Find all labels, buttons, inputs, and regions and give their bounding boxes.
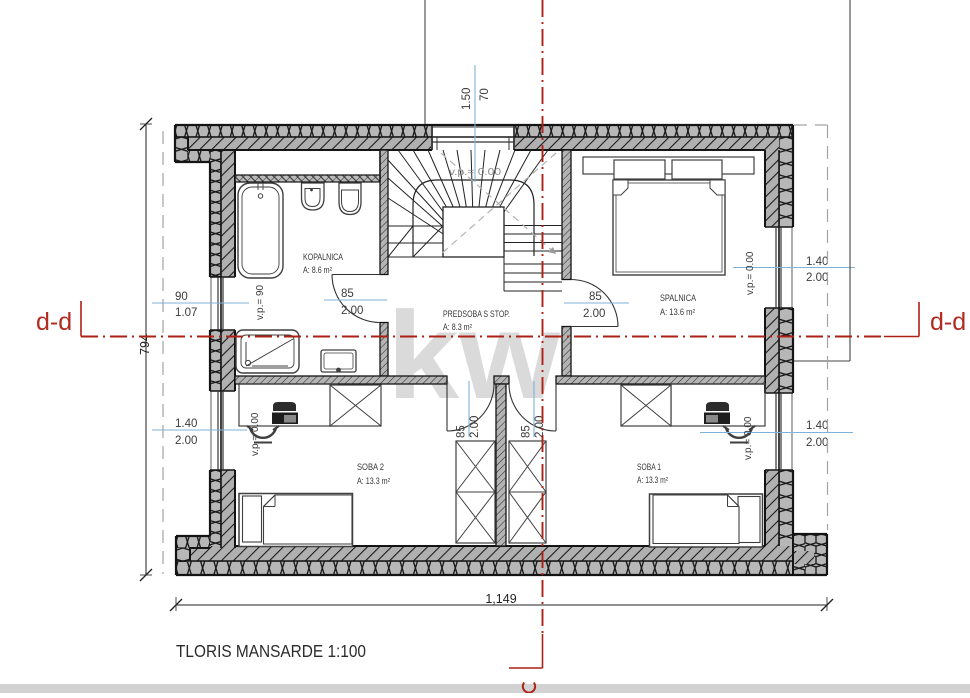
svg-text:2.00: 2.00 [806, 272, 828, 284]
svg-text:SOBA 2: SOBA 2 [357, 462, 384, 472]
svg-text:SOBA 1: SOBA 1 [637, 462, 661, 472]
svg-text:85: 85 [341, 288, 354, 300]
svg-text:A: 13.3 m²: A: 13.3 m² [637, 475, 668, 485]
svg-text:A: 8.3 m²: A: 8.3 m² [443, 322, 472, 332]
svg-text:2.00: 2.00 [583, 308, 605, 320]
svg-text:v.p.= 0.00: v.p.= 0.00 [250, 412, 261, 456]
svg-text:90: 90 [175, 291, 188, 303]
svg-text:2.00: 2.00 [175, 435, 197, 447]
svg-text:2.00: 2.00 [806, 437, 828, 449]
svg-text:2.00: 2.00 [469, 416, 481, 438]
svg-text:1.40: 1.40 [806, 256, 828, 268]
svg-text:1.50: 1.50 [461, 88, 473, 110]
svg-text:KOPALNICA: KOPALNICA [303, 252, 343, 262]
svg-text:d-d: d-d [36, 308, 72, 336]
svg-text:v.p.= 0.00: v.p.= 0.00 [745, 251, 756, 295]
svg-text:85: 85 [589, 291, 602, 303]
svg-text:A: 8.6 m²: A: 8.6 m² [303, 265, 332, 275]
svg-text:1,149: 1,149 [485, 592, 516, 606]
svg-text:v.p.= 0.00: v.p.= 0.00 [743, 416, 754, 460]
svg-text:1.07: 1.07 [175, 307, 197, 319]
svg-text:A: 13.3 m²: A: 13.3 m² [357, 476, 390, 486]
svg-text:1.40: 1.40 [806, 420, 828, 432]
svg-text:PREDSOBA S STOP.: PREDSOBA S STOP. [443, 309, 510, 319]
svg-text:85: 85 [456, 425, 468, 438]
svg-text:85: 85 [521, 425, 533, 438]
svg-text:2.00: 2.00 [534, 416, 546, 438]
svg-text:v.p.= 90: v.p.= 90 [255, 284, 266, 320]
svg-text:2.00: 2.00 [341, 305, 363, 317]
svg-text:1.40: 1.40 [175, 418, 197, 430]
svg-text:d-d: d-d [930, 308, 966, 336]
svg-text:TLORIS MANSARDE 1:100: TLORIS MANSARDE 1:100 [176, 641, 366, 661]
svg-text:70: 70 [479, 88, 491, 101]
svg-text:SPALNICA: SPALNICA [660, 293, 696, 303]
svg-text:A: 13.6 m²: A: 13.6 m² [660, 307, 695, 317]
